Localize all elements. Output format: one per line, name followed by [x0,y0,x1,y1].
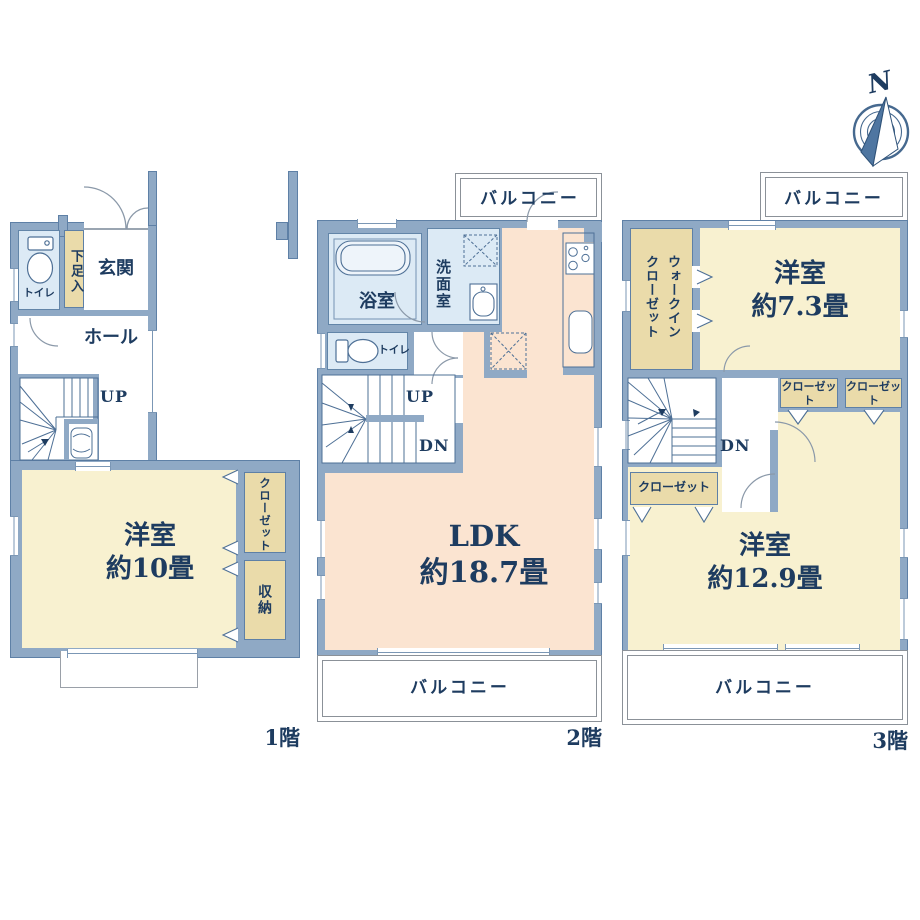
f1-entrance-floor [84,228,148,310]
f2-stairs-floor [322,375,455,463]
f3-window-east3 [900,598,908,640]
f1-window-bedroom-west [10,516,18,556]
f3-bedroom-b-floor-upper [778,412,900,470]
f1-wall-free-segment [288,171,298,259]
f2-balcony-top-inner [460,178,597,217]
f3-closet-b-room [845,378,902,408]
f3-closet-a-room [780,378,838,408]
f1-storage-room [244,560,286,640]
f1-window-hall [10,323,18,347]
f2-toilet-room [327,332,408,370]
f1-window-east [148,330,157,413]
f2-window-ldk-east2 [594,582,602,604]
f2-window-kitchen-east [594,427,602,467]
f3-window-wic [622,280,630,312]
f1-stair-side-wall [93,374,99,420]
f1-hall-floor-lower [99,374,148,460]
f2-fridge-nook-wall-s [490,370,527,378]
f1-window-bedroom-south [67,649,198,658]
f1-window-toilet [10,268,18,302]
f3-balcony-bottom-inner [627,655,903,720]
f1-bedroom-floor [22,470,236,648]
compass-icon [854,97,908,166]
f3-stairs-floor [628,378,716,463]
f2-balcony-bottom [317,655,602,722]
f1-entrance-room [84,210,148,228]
f2-ldk-top [502,228,594,332]
f2-window-ldk-west2 [317,575,325,600]
f1-shoe-storage-room [64,230,84,308]
f2-balcony-top [455,173,602,222]
f3-wic-door-gap2 [692,310,700,332]
f3-wic-door-gap1 [692,266,700,288]
f3-window-east2 [900,528,908,558]
f3-floor-label: 3階 [838,728,908,753]
f3-balcony-top [760,172,908,222]
f2-counter-end-wall [563,367,594,375]
f3-walk-in-closet-room [630,228,693,370]
f3-window-east1 [900,310,908,338]
f2-window-toilet [317,333,325,369]
f2-window-ldk-west1 [317,520,325,558]
f2-balcony-door-opening [527,220,558,230]
f1-window-stair [75,462,111,471]
f3-window-north [728,221,776,230]
f1-closet-room [244,472,286,553]
f2-balcony-bottom-inner [322,660,597,717]
f2-ldk-bottom [325,473,594,650]
f1-wall-free-tab [276,222,288,240]
f3-balcony-top-inner [765,177,903,217]
f3-balcony-bottom [622,650,908,725]
f2-kitchen-corner-wall [584,222,602,242]
f2-ldk-mid [463,332,594,473]
f3-bedroom-a-floor [700,228,900,370]
f3-window-west1 [622,420,630,450]
f2-bathroom [328,233,422,325]
f2-window-bath [357,219,397,228]
f3-closet-c-room [630,472,718,505]
f1-wall-entry-right [148,171,157,226]
f2-washroom [427,228,500,325]
f1-floor-label: 1階 [230,725,300,750]
f3-hall-room-wall [770,430,778,512]
f2-stair-opening [455,378,463,423]
floor-plan: N トイレ 下足入 玄関 ホール UP 洋室 約10畳 クローゼット 収納 1階… [0,0,920,920]
f1-hall-floor [18,316,148,374]
compass-north-label: N [857,64,903,103]
f1-toilet-room [18,230,60,310]
f1-stairs-floor [20,378,98,460]
f3-window-west2 [622,520,630,556]
f2-floor-label: 2階 [532,725,602,750]
f2-window-ldk-east1 [594,518,602,550]
